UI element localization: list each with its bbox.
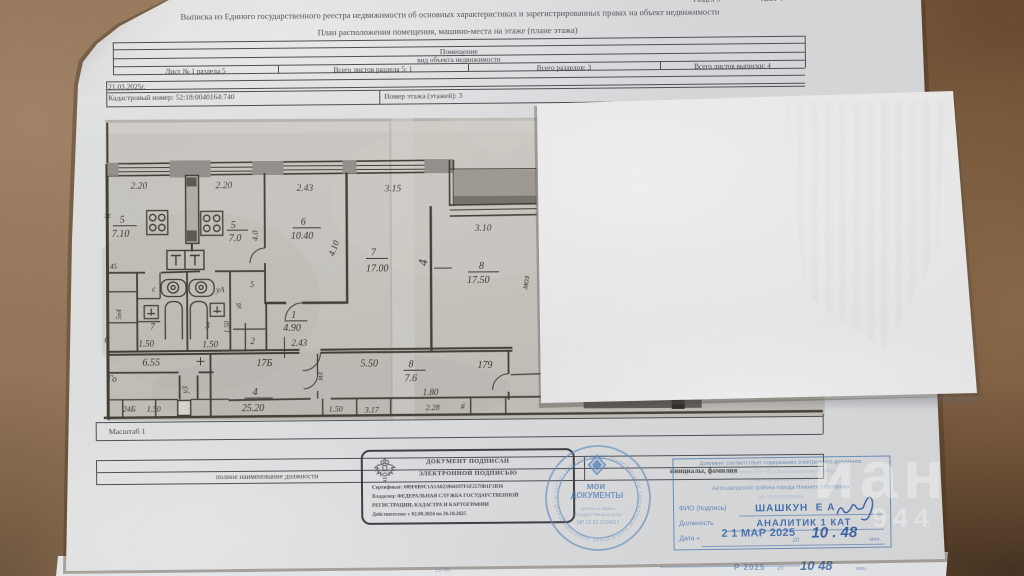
svg-text:зб: зб [235,302,243,310]
svg-text:10.40: 10.40 [291,231,314,242]
svg-text:8: 8 [408,359,413,370]
svg-text:3.15: 3.15 [384,184,402,194]
svg-text:4.0: 4.0 [250,230,260,241]
svg-text:4: 4 [253,387,258,398]
svg-text:5: 5 [120,215,125,226]
svg-text:ж: ж [104,211,112,220]
svg-text:17Б: 17Б [256,358,272,369]
svg-text:1.50: 1.50 [223,320,231,333]
svg-text:6.55: 6.55 [142,358,160,369]
svg-text:179: 179 [477,360,492,371]
svg-text:центры и офисы: центры и офисы [580,506,615,511]
svg-text:Го: Го [107,374,118,384]
svg-text:3.10: 3.10 [474,224,492,234]
svg-text:у3: у3 [181,386,190,395]
svg-text:17.50: 17.50 [467,275,490,286]
svg-text:17.00: 17.00 [366,263,389,274]
svg-text:ДОКУМЕНТЫ: ДОКУМЕНТЫ [571,491,624,500]
svg-text:1.50: 1.50 [138,339,154,349]
svg-text:5: 5 [231,220,236,231]
svg-text:2.43: 2.43 [291,338,307,348]
svg-text:5: 5 [250,280,254,289]
svg-text:государственных услуг: государственных услуг [574,512,623,517]
svg-text:4.90: 4.90 [283,323,301,334]
svg-text:2.43: 2.43 [297,184,314,194]
svg-text:1.50: 1.50 [202,339,218,349]
svg-text:7: 7 [150,322,155,332]
svg-text:с: с [152,285,156,294]
svg-text:7.0: 7.0 [229,233,242,244]
svg-text:2.20: 2.20 [216,181,233,191]
svg-text:7.6: 7.6 [405,373,418,384]
svg-text:5.50: 5.50 [360,358,378,369]
svg-text:6: 6 [301,217,306,228]
svg-text:45: 45 [110,263,118,271]
svg-text:уА: уА [215,285,225,294]
svg-text:1: 1 [291,310,296,321]
svg-text:МР 52 52 1234567: МР 52 52 1234567 [577,520,619,526]
svg-text:5п4: 5п4 [115,309,123,320]
svg-text:3: 3 [204,320,210,330]
svg-text:1.80: 1.80 [423,387,439,397]
svg-text:2.20: 2.20 [131,182,148,192]
svg-text:2: 2 [250,336,255,346]
svg-text:8: 8 [479,261,484,272]
svg-text:7.10: 7.10 [112,229,130,240]
